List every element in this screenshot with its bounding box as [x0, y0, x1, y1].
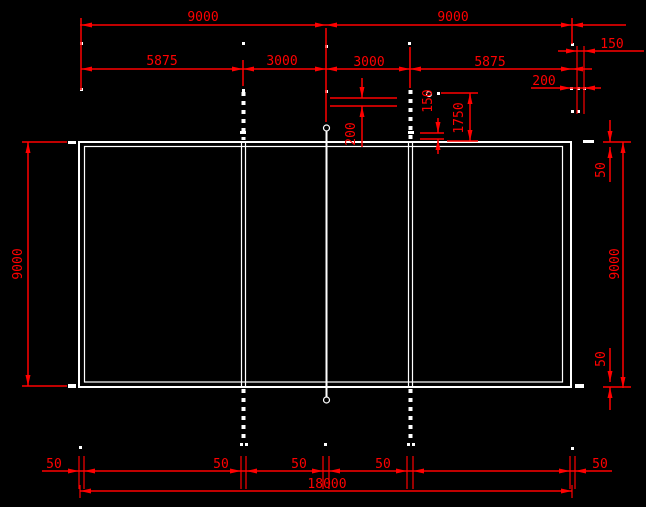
dim-bottom-18000: 18000 — [80, 477, 572, 498]
dim-net-150: 150 — [420, 89, 444, 154]
dim-label-50-attack-left: 50 — [213, 457, 229, 472]
dim-label-50-right-edge: 50 — [592, 457, 608, 472]
dim-1750: 1750 — [441, 93, 478, 141]
dim-left-9000: 9000 — [11, 142, 67, 386]
court-boundary — [79, 142, 571, 387]
dim-offset-150: 150 — [558, 37, 644, 114]
dim-label-left-9000: 9000 — [11, 248, 26, 279]
dim-label-right-3000: 3000 — [353, 55, 384, 70]
cad-drawing-canvas: 9000 9000 5875 3000 3000 5875 150 200 — [0, 0, 646, 507]
attack-line-right — [409, 143, 413, 386]
dim-label-50-center: 50 — [291, 457, 307, 472]
dim-label-left-5875: 5875 — [146, 54, 177, 69]
dim-label-1750: 1750 — [452, 102, 467, 133]
court-plan-svg: 9000 9000 5875 3000 3000 5875 150 200 — [0, 0, 646, 507]
dim-label-50-attack-right: 50 — [375, 457, 391, 472]
dim-net-200: 200 — [330, 78, 397, 147]
dim-right-50-top: 50 — [594, 120, 631, 182]
dim-label-offset-200: 200 — [532, 74, 555, 89]
dim-label-right-50-bottom: 50 — [594, 351, 609, 367]
dim-top-row2: 5875 3000 3000 5875 — [81, 47, 592, 88]
dim-label-top-left-9000: 9000 — [187, 10, 218, 25]
dim-label-right-5875: 5875 — [474, 55, 505, 70]
dim-offset-200: 200 — [531, 74, 601, 91]
dim-label-right-50-top: 50 — [594, 162, 609, 178]
center-line-bottom-marker — [324, 397, 330, 403]
dim-label-right-9000: 9000 — [608, 248, 623, 279]
attack-line-left — [242, 143, 246, 386]
dim-label-net-200: 200 — [344, 122, 359, 145]
center-line-top-marker — [324, 125, 330, 131]
dim-label-left-3000: 3000 — [266, 54, 297, 69]
dim-label-18000: 18000 — [307, 477, 346, 492]
dim-label-50-left-edge: 50 — [46, 457, 62, 472]
center-line — [324, 125, 330, 403]
court-inner-line — [85, 147, 563, 383]
court-outer-line — [79, 142, 571, 387]
dim-right-50-bottom: 50 — [594, 348, 631, 410]
dim-label-net-150: 150 — [421, 89, 436, 112]
white-extension-ticks — [68, 42, 594, 450]
dim-label-top-right-9000: 9000 — [437, 10, 468, 25]
dim-label-offset-150: 150 — [600, 37, 623, 52]
